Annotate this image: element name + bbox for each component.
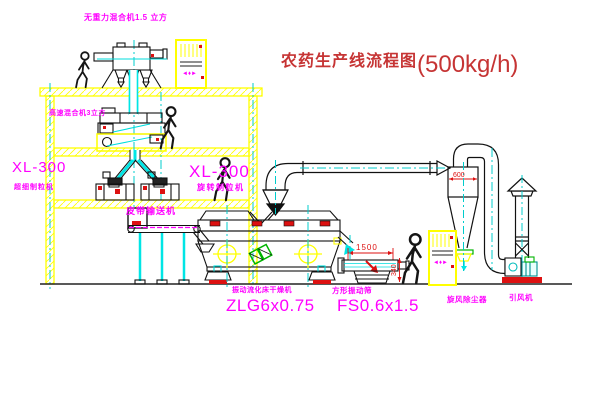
label-xl300-mid-model: XL-300	[189, 163, 250, 180]
cabinet-logo-top: ◄♦►	[182, 71, 197, 77]
label-dryer-model: ZLG6x0.75	[226, 297, 315, 314]
label-dryer-name: 振动流化床干燥机	[232, 287, 292, 294]
label-screen-name: 方形振动筛	[332, 287, 372, 295]
control-cabinet-ground	[429, 231, 456, 285]
dim-text-340: 340	[391, 264, 398, 276]
label-belt-conveyor: 皮带输送机	[126, 207, 176, 216]
label-gravity-free-mixer: 无重力混合机1.5 立方	[84, 14, 167, 22]
pesticide-line-flow-drawing: 农药生产线流程图(500kg/h) 无重力混合机1.5 立方 高速混合机3立方 …	[0, 0, 600, 403]
label-xl300-left-model: XL-300	[12, 160, 66, 175]
dim-text-1500: 1500	[356, 244, 378, 252]
label-cyclone: 旋风除尘器	[447, 296, 487, 304]
exhaust-duct	[263, 160, 450, 215]
worker-roof	[76, 52, 89, 87]
title-chinese: 农药生产线流程图	[281, 53, 417, 70]
cabinet-logo-ground: ◄♦►	[433, 260, 448, 266]
dim-text-600: 600	[453, 172, 465, 179]
fluid-bed-dryer	[198, 211, 355, 284]
label-xl300-mid-name: 旋转制粒机	[197, 184, 245, 192]
label-high-speed-mixer: 高速混合机3立方	[49, 110, 106, 117]
label-screen-model: FS0.6x1.5	[337, 297, 419, 314]
label-xl300-left-name: 超细制粒机	[14, 184, 54, 191]
dryer-discharge-chute	[334, 231, 355, 255]
high-speed-mixer	[97, 97, 166, 151]
title-capacity: (500kg/h)	[417, 51, 518, 78]
cyclone-outlet-pipe	[454, 144, 506, 275]
worker-floor2	[161, 107, 176, 148]
control-cabinet-top	[176, 40, 206, 88]
label-fan: 引风机	[509, 294, 533, 302]
drawing-title: 农药生产线流程图(500kg/h)	[281, 47, 518, 79]
worker-ground	[403, 234, 421, 283]
belt-conveyor	[128, 221, 214, 284]
